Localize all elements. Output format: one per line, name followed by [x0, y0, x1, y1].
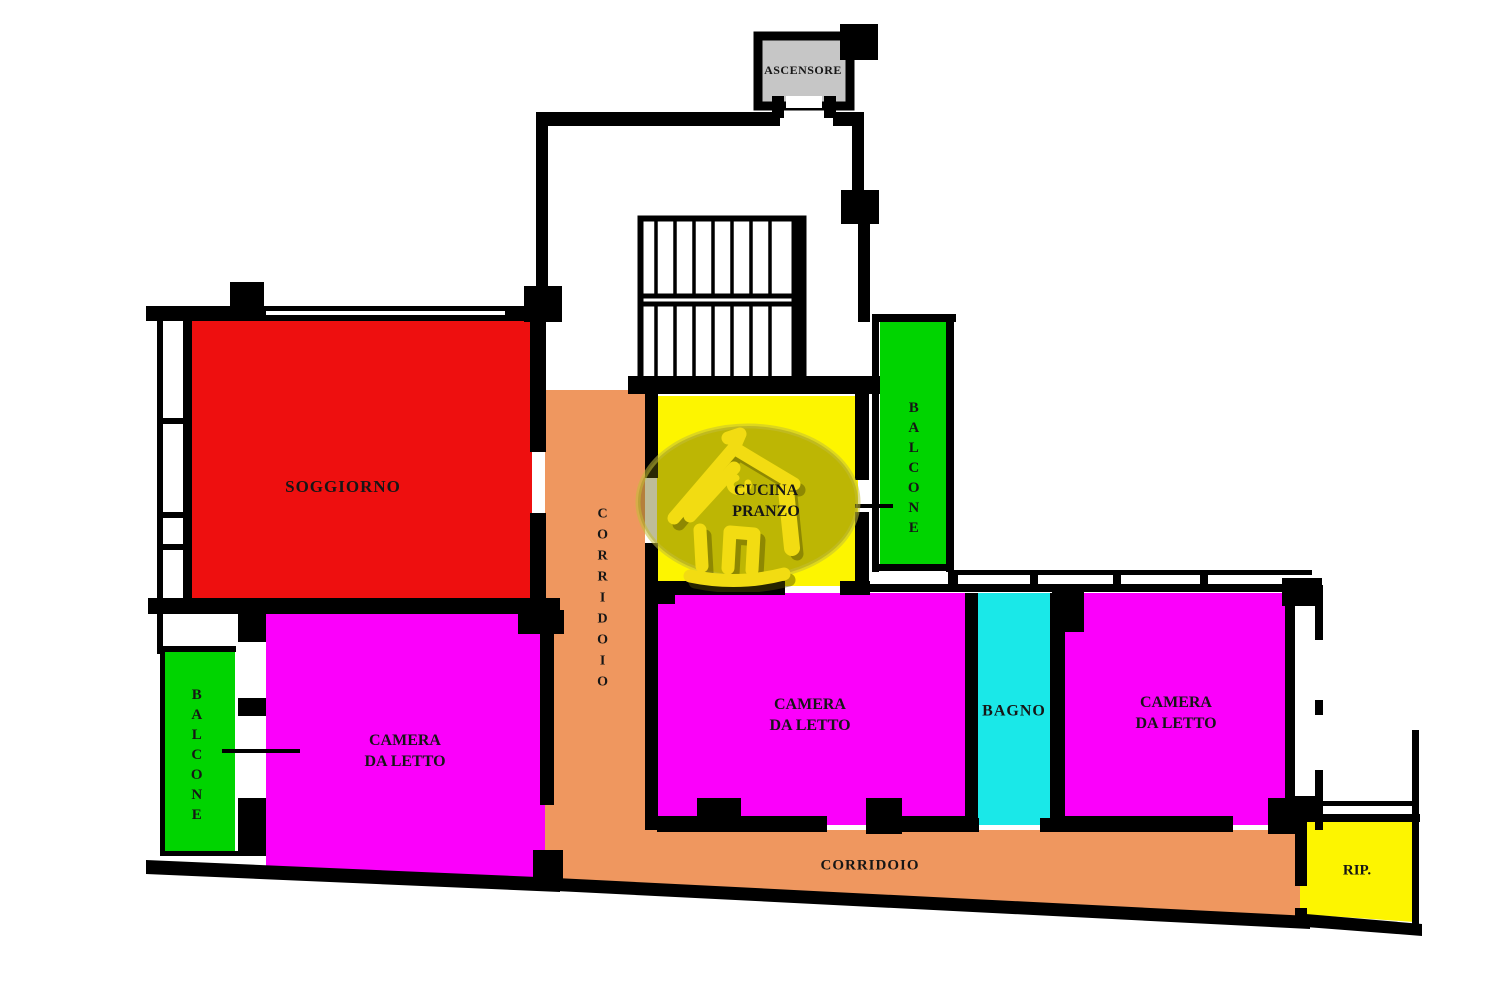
label-corridoio-orizzontale: CORRIDOIO [820, 856, 919, 876]
label-bagno: BAGNO [982, 702, 1046, 723]
room-soggiorno [192, 316, 532, 608]
label-camera-centrale: CAMERA DA LETTO [769, 694, 850, 736]
label-camera-destra: CAMERA DA LETTO [1135, 692, 1216, 734]
label-camera-destra-line1: CAMERA [1135, 692, 1216, 713]
label-balcone-ovest: BALCONE [186, 687, 206, 827]
stairs [638, 216, 806, 388]
label-camera-sinistra-line1: CAMERA [364, 730, 445, 751]
label-ascensore: ASCENSORE [764, 63, 842, 79]
label-camera-centrale-line1: CAMERA [769, 694, 850, 715]
label-camera-sinistra: CAMERA DA LETTO [364, 730, 445, 772]
floor-plan: ASCENSORE SOGGIORNO CUCINA PRANZO BALCON… [0, 0, 1500, 1000]
label-soggiorno: SOGGIORNO [285, 476, 401, 498]
label-corridoio-verticale: CORRIDOIO [593, 507, 611, 696]
label-ripostiglio: RIP. [1343, 861, 1371, 881]
label-camera-destra-line2: DA LETTO [1135, 713, 1216, 734]
label-camera-centrale-line2: DA LETTO [769, 715, 850, 736]
label-camera-sinistra-line2: DA LETTO [364, 751, 445, 772]
label-cucina-line1: CUCINA [732, 480, 800, 501]
label-cucina-line2: PRANZO [732, 501, 800, 522]
label-balcone-nord: BALCONE [903, 400, 923, 540]
label-cucina-pranzo: CUCINA PRANZO [732, 480, 800, 522]
door-lines [222, 749, 300, 753]
balcony-door-line-left [222, 749, 300, 753]
